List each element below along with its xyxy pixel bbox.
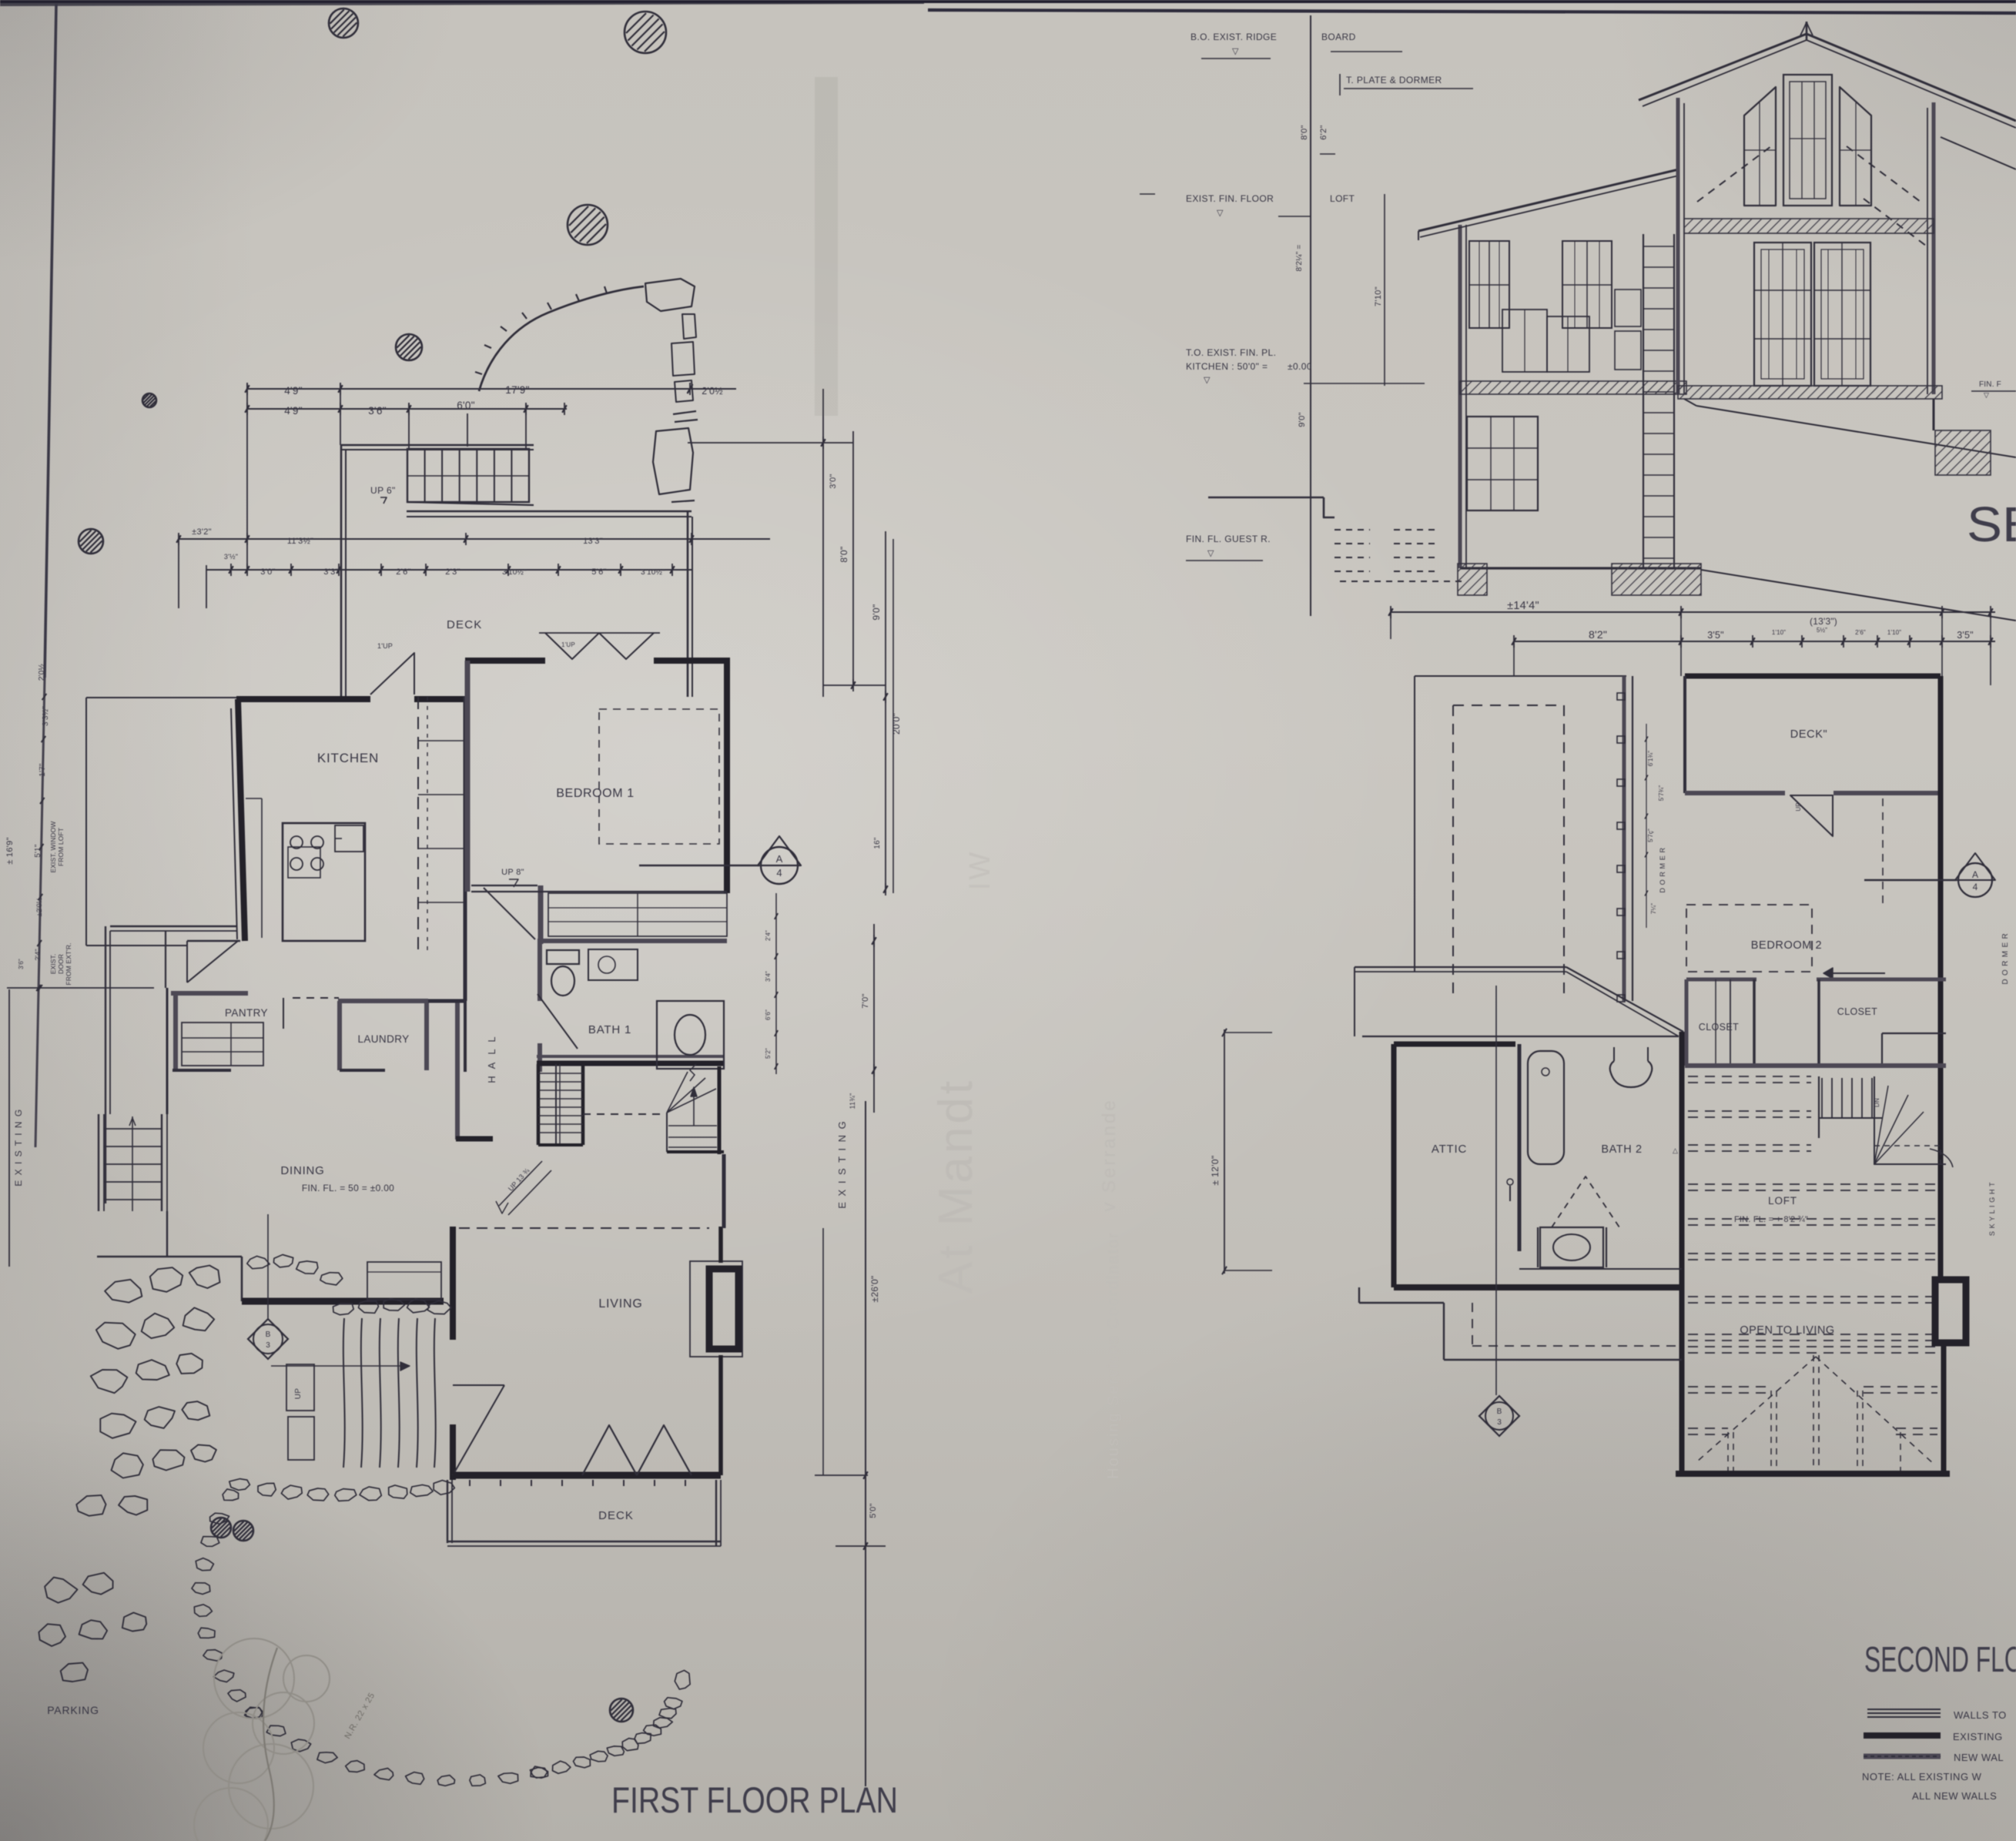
svg-text:PANTRY: PANTRY	[225, 1007, 268, 1019]
svg-text:LOFT: LOFT	[1330, 193, 1355, 204]
svg-text:9'0": 9'0"	[871, 604, 882, 620]
svg-text:SE: SE	[1967, 497, 2016, 552]
svg-text:5'7ç": 5'7ç"	[1647, 828, 1654, 842]
svg-text:DECK: DECK	[447, 618, 482, 631]
svg-text:DECK: DECK	[598, 1509, 634, 1522]
svg-text:13'3": 13'3"	[583, 537, 603, 546]
svg-text:FIN. FL. = 50 = ±0.00: FIN. FL. = 50 = ±0.00	[302, 1183, 394, 1193]
svg-text:5'6": 5'6"	[591, 567, 606, 577]
svg-text:FROM EXT'R.: FROM EXT'R.	[65, 942, 72, 985]
svg-text:3'10½": 3'10½"	[502, 568, 527, 577]
svg-text:3'3½": 3'3½"	[42, 706, 50, 726]
svg-text:T.O. EXIST. FIN. PL.: T.O. EXIST. FIN. PL.	[1186, 347, 1276, 358]
svg-text:20'0": 20'0"	[891, 713, 902, 735]
svg-text:UP 13 ¾: UP 13 ¾	[507, 1167, 531, 1193]
svg-text:8'2¼" =: 8'2¼" =	[1294, 245, 1304, 272]
svg-text:±0.00: ±0.00	[1288, 361, 1312, 372]
svg-text:±2'0½: ±2'0½	[35, 897, 43, 916]
svg-text:4: 4	[1973, 882, 1978, 892]
svg-text:3'0": 3'0"	[829, 474, 838, 488]
svg-text:At Mandt: At Mandt	[929, 1078, 983, 1294]
svg-text:3'5": 3'5"	[1707, 630, 1724, 641]
svg-text:7'0": 7'0"	[861, 993, 870, 1008]
svg-text:BEDROOM 1: BEDROOM 1	[556, 787, 634, 800]
svg-text:v Serrande: v Serrande	[1099, 1098, 1120, 1211]
svg-text:▽: ▽	[1984, 391, 1990, 399]
svg-text:NOTE: ALL EXISTING W: NOTE: ALL EXISTING W	[1862, 1771, 1982, 1782]
svg-text:L: L	[486, 1036, 497, 1042]
svg-text:A: A	[486, 1062, 497, 1069]
svg-text:± 16'9": ± 16'9"	[5, 837, 15, 865]
svg-text:5'1": 5'1"	[34, 844, 42, 858]
svg-text:▽: ▽	[1217, 209, 1224, 218]
svg-text:FIRST FLOOR PLAN: FIRST FLOOR PLAN	[611, 1779, 898, 1820]
svg-text:BATH 1: BATH 1	[588, 1023, 631, 1036]
svg-text:6'0": 6'0"	[457, 400, 475, 411]
svg-text:A: A	[1972, 869, 1978, 880]
svg-text:1'10": 1'10"	[1887, 629, 1901, 636]
svg-text:KITCHEN : 50'0" =: KITCHEN : 50'0" =	[1186, 361, 1268, 372]
svg-text:2'6": 2'6"	[1855, 629, 1866, 636]
svg-text:EXIST. WINDOW: EXIST. WINDOW	[49, 822, 57, 873]
svg-text:8'2": 8'2"	[1589, 628, 1607, 641]
svg-text:1'UP: 1'UP	[377, 642, 393, 650]
svg-text:NEW WAL: NEW WAL	[1954, 1752, 2004, 1763]
svg-text:FIN. FL. GUEST R.: FIN. FL. GUEST R.	[1186, 534, 1271, 544]
svg-text:△: △	[1673, 1146, 1679, 1154]
svg-text:3'½": 3'½"	[224, 553, 238, 561]
svg-text:IW: IW	[964, 850, 996, 890]
svg-text:5'7¾": 5'7¾"	[1658, 785, 1665, 801]
svg-text:LOFT: LOFT	[1768, 1195, 1797, 1207]
svg-text:▽: ▽	[1207, 549, 1215, 558]
svg-text:UP: UP	[294, 1388, 303, 1400]
svg-text:1'7": 1'7"	[39, 763, 47, 777]
svg-text:FIN. F: FIN. F	[1979, 380, 2001, 389]
svg-text:▽: ▽	[1204, 376, 1211, 385]
svg-text:3'6": 3'6"	[368, 405, 387, 417]
svg-text:E X I S T I N G: E X I S T I N G	[13, 1108, 24, 1186]
svg-text:±14'4": ±14'4"	[1507, 600, 1539, 612]
svg-text:5'0": 5'0"	[869, 1503, 878, 1518]
svg-text:UP: UP	[1795, 802, 1802, 811]
svg-text:▽: ▽	[1232, 47, 1240, 56]
svg-text:17'9": 17'9"	[505, 384, 529, 396]
svg-text:(13'3"): (13'3")	[1810, 616, 1837, 627]
svg-text:2'0½: 2'0½	[702, 386, 723, 397]
svg-text:4'9": 4'9"	[284, 405, 303, 417]
svg-text:2'4": 2'4"	[34, 949, 42, 960]
svg-text:3'6": 3'6"	[18, 959, 25, 969]
svg-text:BATH 2: BATH 2	[1601, 1143, 1642, 1156]
svg-text:B: B	[266, 1331, 271, 1339]
svg-text:D O R M E R: D O R M E R	[1659, 847, 1666, 892]
svg-text:3'4": 3'4"	[765, 971, 772, 982]
svg-text:EXIST. FIN. FLOOR: EXIST. FIN. FLOOR	[1186, 193, 1274, 204]
svg-text:DINING: DINING	[280, 1164, 324, 1177]
svg-text:T. PLATE & DORMER: T. PLATE & DORMER	[1346, 75, 1442, 85]
svg-text:5'2": 5'2"	[765, 1048, 772, 1059]
svg-text:KITCHEN: KITCHEN	[317, 751, 379, 765]
svg-text:DECK": DECK"	[1790, 728, 1827, 741]
svg-text:SECOND FLOOR PLAN: SECOND FLOOR PLAN	[1864, 1639, 2016, 1679]
svg-text:3: 3	[266, 1341, 270, 1350]
svg-text:N.R. 22 x 25: N.R. 22 x 25	[343, 1691, 377, 1740]
svg-text:3'3": 3'3"	[323, 567, 338, 577]
svg-text:6'2": 6'2"	[1319, 125, 1328, 139]
svg-text:±26'0": ±26'0"	[869, 1276, 880, 1303]
svg-text:5½": 5½"	[1817, 627, 1827, 634]
svg-text:8'0": 8'0"	[1300, 125, 1309, 139]
svg-text:FROM LOFT: FROM LOFT	[57, 828, 65, 866]
svg-text:2'4": 2'4"	[765, 930, 772, 941]
svg-text:ATTIC: ATTIC	[1432, 1143, 1467, 1156]
svg-text:D O R M E R: D O R M E R	[2001, 932, 2010, 984]
svg-text:11¾": 11¾"	[849, 1093, 856, 1110]
svg-text:B: B	[1497, 1408, 1502, 1416]
svg-text:7'10": 7'10"	[1374, 286, 1383, 306]
svg-text:± 12'0": ± 12'0"	[1210, 1155, 1221, 1185]
svg-text:S K Y L I G H T: S K Y L I G H T	[1988, 1182, 1996, 1236]
svg-text:CLOSET: CLOSET	[1837, 1006, 1877, 1017]
svg-text:8'0": 8'0"	[839, 546, 849, 562]
svg-text:3'10½": 3'10½"	[641, 568, 665, 577]
svg-text:3: 3	[1497, 1418, 1502, 1427]
svg-text:16": 16"	[873, 837, 882, 849]
svg-text:FIN. FL. = + 8'2 ¾": FIN. FL. = + 8'2 ¾"	[1734, 1215, 1808, 1224]
svg-text:2'6": 2'6"	[396, 567, 410, 577]
svg-text:3'5": 3'5"	[1957, 630, 1974, 641]
svg-text:9'0": 9'0"	[1298, 412, 1307, 427]
svg-text:11'3½": 11'3½"	[287, 537, 314, 546]
svg-text:ALL NEW WALLS: ALL NEW WALLS	[1912, 1790, 1997, 1802]
svg-text:Housing Services Coordinator: Housing Services Coordinator	[1105, 1231, 1122, 1479]
svg-text:E X I S T I N G: E X I S T I N G	[836, 1120, 848, 1209]
svg-text:6'6": 6'6"	[765, 1009, 772, 1020]
svg-text:DOOR: DOOR	[57, 954, 65, 974]
svg-text:2'3": 2'3"	[445, 567, 460, 577]
svg-text:UP 6": UP 6"	[370, 485, 396, 496]
svg-text:1'10": 1'10"	[1772, 629, 1786, 636]
svg-text:WALLS TO: WALLS TO	[1954, 1709, 2007, 1721]
svg-text:6'1¾": 6'1¾"	[1647, 751, 1654, 766]
svg-text:UP 8": UP 8"	[501, 868, 524, 877]
svg-text:BOARD: BOARD	[1321, 32, 1356, 42]
svg-text:±3'2": ±3'2"	[192, 527, 212, 537]
svg-text:B.O. EXIST. RIDGE: B.O. EXIST. RIDGE	[1191, 32, 1277, 42]
svg-text:LIVING: LIVING	[598, 1297, 642, 1310]
svg-text:L: L	[486, 1049, 497, 1054]
svg-text:4'9": 4'9"	[284, 385, 303, 397]
svg-text:EXIST.: EXIST.	[49, 954, 57, 975]
svg-text:OPEN TO LIVING: OPEN TO LIVING	[1740, 1324, 1834, 1337]
svg-text:H: H	[486, 1076, 497, 1083]
svg-text:PARKING: PARKING	[47, 1704, 99, 1716]
svg-text:2'0½: 2'0½	[38, 663, 46, 681]
svg-text:EXISTING: EXISTING	[1953, 1731, 2003, 1742]
svg-text:7¼": 7¼"	[1650, 903, 1657, 914]
svg-text:4: 4	[776, 867, 782, 879]
svg-text:3'0": 3'0"	[260, 567, 275, 577]
svg-text:CLOSET: CLOSET	[1699, 1022, 1739, 1033]
svg-text:LAUNDRY: LAUNDRY	[357, 1033, 409, 1045]
svg-text:DN: DN	[1874, 1098, 1880, 1107]
svg-text:A: A	[776, 853, 783, 865]
svg-text:1'UP: 1'UP	[561, 641, 575, 648]
